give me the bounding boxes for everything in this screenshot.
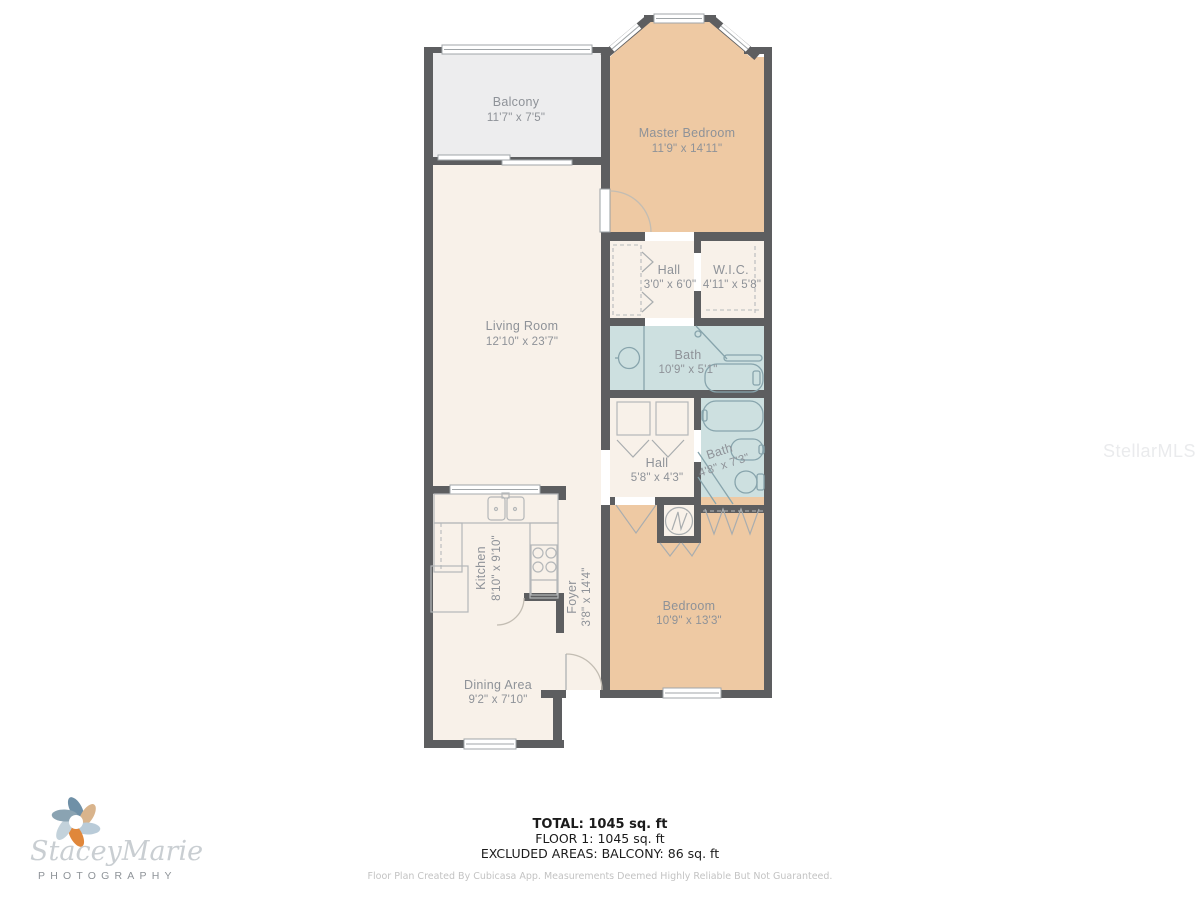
- balcony-label: Balcony: [493, 95, 540, 109]
- bath-main-dims: 10'9" x 5'1": [658, 364, 717, 376]
- hall-upper-label: Hall: [658, 263, 681, 277]
- wic-label: W.I.C.: [713, 263, 749, 277]
- bedroom-label: Bedroom: [663, 599, 716, 613]
- excluded-areas-text: EXCLUDED AREAS: BALCONY: 86 sq. ft: [481, 846, 719, 861]
- logo-script-text: StaceyMarie: [30, 836, 203, 867]
- master-bedroom-dims: 11'9" x 14'11": [652, 143, 723, 155]
- foyer-dims: 3'8" x 14'4": [581, 567, 593, 626]
- stellar-mls-watermark: StellarMLS: [1103, 441, 1196, 461]
- dining-dims: 9'2" x 7'10": [468, 694, 527, 706]
- bay-window: [654, 14, 704, 23]
- balcony-window: [442, 45, 592, 54]
- bedroom-dims: 10'9" x 13'3": [656, 615, 722, 627]
- living-room-dims: 12'10" x 23'7": [486, 336, 558, 348]
- dining-label: Dining Area: [464, 678, 532, 692]
- bedroom-window: [663, 688, 721, 698]
- kitchen-dims: 8'10" x 9'10": [491, 535, 503, 601]
- floor1-area-text: FLOOR 1: 1045 sq. ft: [535, 831, 665, 846]
- living-room-label: Living Room: [486, 319, 559, 333]
- master-bedroom-label: Master Bedroom: [639, 126, 736, 140]
- photographer-logo: StaceyMarie PHOTOGRAPHY: [30, 795, 203, 882]
- balcony-dims: 11'7" x 7'5": [487, 112, 545, 124]
- disclaimer-text: Floor Plan Created By Cubicasa App. Meas…: [368, 871, 833, 882]
- bath-main-label: Bath: [675, 348, 702, 362]
- kitchen-window: [450, 485, 540, 494]
- dining-window: [464, 739, 516, 749]
- hall-lower-label: Hall: [646, 456, 669, 470]
- total-area-text: TOTAL: 1045 sq. ft: [533, 817, 668, 832]
- living-area-floor: [433, 161, 601, 740]
- summary-block: TOTAL: 1045 sq. ft FLOOR 1: 1045 sq. ft …: [368, 817, 833, 882]
- foyer-label: Foyer: [565, 580, 579, 613]
- hall-lower-dims: 5'8" x 4'3": [631, 472, 683, 484]
- floor-plan: Balcony 11'7" x 7'5" Master Bedroom 11'9…: [0, 0, 1200, 900]
- kitchen-label: Kitchen: [474, 546, 488, 590]
- wic-dims: 4'11" x 5'8": [703, 279, 761, 291]
- logo-subtitle-text: PHOTOGRAPHY: [38, 870, 177, 882]
- hall-upper-dims: 3'0" x 6'0": [644, 279, 696, 291]
